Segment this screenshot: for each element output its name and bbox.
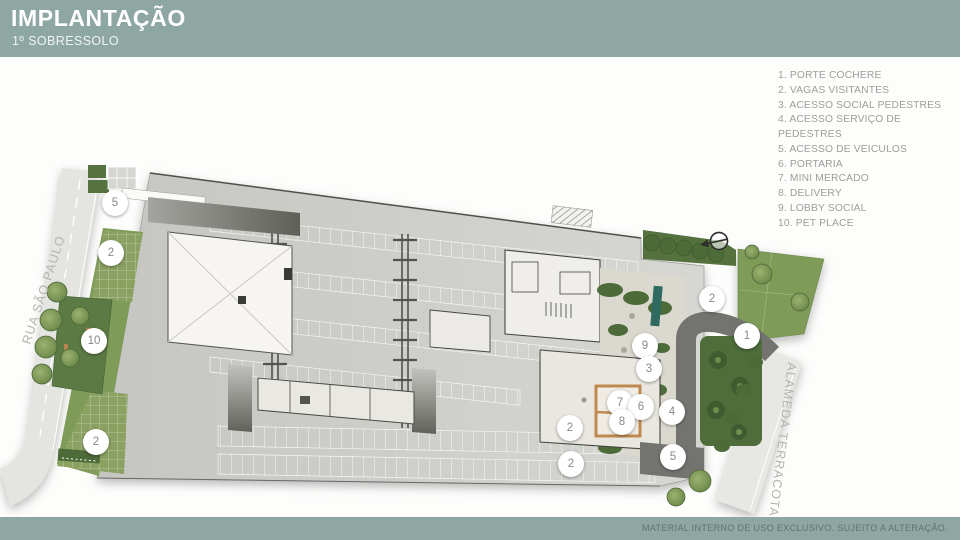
legend-item: 10. PET PLACE	[778, 217, 958, 232]
legend-item: 2. VAGAS VISITANTES	[778, 84, 958, 99]
plan-marker-8: 8	[609, 409, 635, 435]
plan-marker-9: 9	[632, 333, 658, 359]
plan-marker-2: 2	[83, 429, 109, 455]
legend-item: 9. LOBBY SOCIAL	[778, 202, 958, 217]
plan-marker-2: 2	[558, 451, 584, 477]
slide: RUA SÃO PAULO ALAMEDA TERRACOTA 52102219…	[0, 0, 960, 540]
footer-band: MATERIAL INTERNO DE USO EXCLUSIVO. SUJEI…	[0, 517, 960, 540]
page-title: IMPLANTAÇÃO	[11, 5, 186, 32]
legend-item: 8. DELIVERY	[778, 187, 958, 202]
plan-marker-2: 2	[557, 415, 583, 441]
plan-marker-2: 2	[98, 240, 124, 266]
legend-item: 6. PORTARIA	[778, 158, 958, 173]
legend-item: 3. ACESSO SOCIAL PEDESTRES	[778, 99, 958, 114]
plan-marker-1: 1	[734, 323, 760, 349]
disclaimer-text: MATERIAL INTERNO DE USO EXCLUSIVO. SUJEI…	[642, 517, 948, 540]
legend-item: 4. ACESSO SERVIÇO DE PEDESTRES	[778, 113, 958, 143]
legend-item: 5. ACESSO DE VEICULOS	[778, 143, 958, 158]
plan-marker-10: 10	[81, 328, 107, 354]
plan-marker-5: 5	[102, 190, 128, 216]
plan-marker-3: 3	[636, 356, 662, 382]
legend: 1. PORTE COCHERE2. VAGAS VISITANTES3. AC…	[778, 69, 958, 231]
legend-item: 1. PORTE COCHERE	[778, 69, 958, 84]
plan-marker-4: 4	[659, 399, 685, 425]
plan-marker-5: 5	[660, 444, 686, 470]
plan-marker-2: 2	[699, 286, 725, 312]
header-band: IMPLANTAÇÃO 1º SOBRESSOLO	[0, 0, 960, 57]
page-subtitle: 1º SOBRESSOLO	[12, 34, 119, 48]
legend-item: 7. MINI MERCADO	[778, 172, 958, 187]
